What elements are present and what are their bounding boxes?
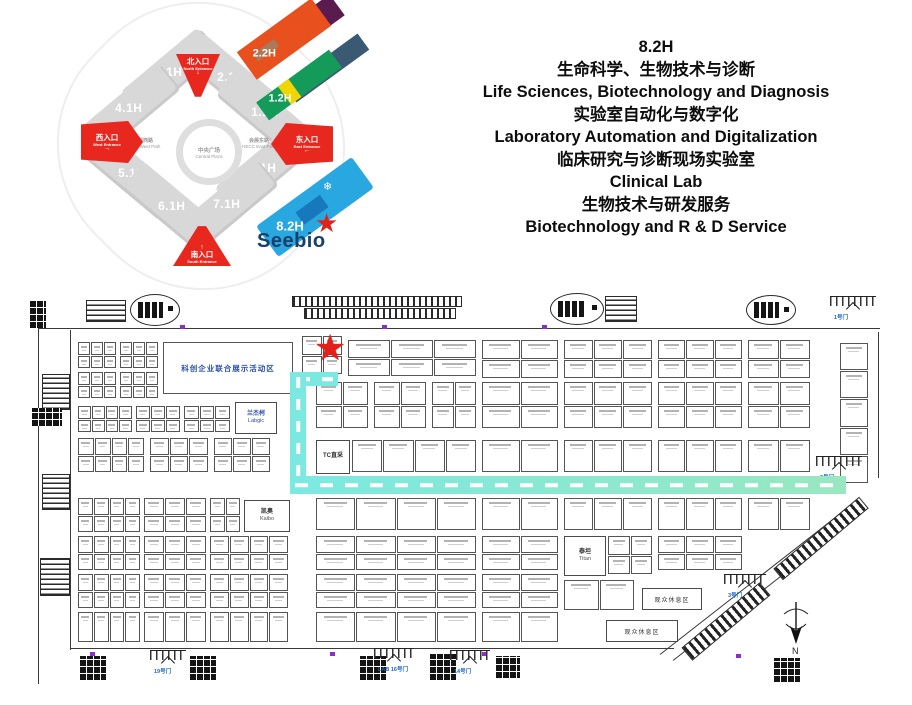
booth-cell bbox=[144, 574, 164, 591]
booth-cell bbox=[521, 536, 559, 553]
booth-cell bbox=[94, 612, 109, 642]
rest-area-0: 观众休息区 bbox=[642, 588, 702, 610]
header-line-1: 生命科学、生物技术与诊断 bbox=[408, 59, 904, 82]
booth-cell bbox=[748, 382, 779, 405]
booth-cell bbox=[432, 382, 454, 405]
service-point-3 bbox=[90, 652, 95, 656]
booth-cell bbox=[658, 360, 685, 379]
booth-cell bbox=[482, 382, 520, 405]
booth-grid-13 bbox=[210, 498, 240, 532]
booth-cell bbox=[686, 554, 713, 571]
booth-cell bbox=[521, 340, 559, 359]
booth-cell bbox=[166, 420, 180, 433]
booth-grid-8 bbox=[78, 438, 144, 472]
escalator-oval-0 bbox=[130, 294, 180, 326]
gate-0 bbox=[830, 296, 876, 306]
north-entrance-zh: 北入口 bbox=[187, 57, 210, 66]
booth-cell bbox=[125, 536, 140, 553]
booth-cell bbox=[133, 356, 145, 369]
booth-cell bbox=[250, 592, 269, 609]
booth-cell bbox=[186, 592, 206, 609]
booth-cell bbox=[104, 372, 116, 385]
booth-cell bbox=[186, 498, 206, 515]
booth-cell bbox=[780, 360, 811, 379]
header-line-3: 实验室自动化与数字化 bbox=[408, 104, 904, 127]
east-entrance-zh: 东入口 bbox=[296, 135, 319, 144]
booth-cell bbox=[133, 372, 145, 385]
booth-cell bbox=[120, 356, 132, 369]
booth-cell bbox=[434, 359, 476, 377]
booth-cell bbox=[151, 420, 165, 433]
booth-grid-2 bbox=[120, 342, 158, 368]
joint-exhibition-area: 科创企业联合展示活动区 bbox=[163, 342, 293, 394]
booth-tc-zhicai: TC直采 bbox=[316, 440, 350, 474]
rest-area-1: 观众休息区 bbox=[606, 620, 678, 642]
service-point-2 bbox=[542, 325, 547, 329]
booth-cell bbox=[564, 406, 593, 429]
hall-petal-label: 7.1H bbox=[213, 197, 240, 211]
booth-cell bbox=[269, 612, 288, 642]
booth-cell bbox=[437, 554, 476, 571]
booth-cell bbox=[91, 342, 103, 355]
booth-cell bbox=[210, 592, 229, 609]
header-line-8: Biotechnology and R & D Service bbox=[408, 216, 904, 239]
booth-cell bbox=[78, 516, 93, 533]
booth-cell bbox=[146, 342, 158, 355]
booth-cell bbox=[151, 406, 165, 419]
booth-cell bbox=[316, 574, 355, 591]
booth-cell bbox=[112, 438, 128, 455]
booth-cell bbox=[165, 554, 185, 571]
booth-cell bbox=[125, 554, 140, 571]
service-block-7 bbox=[32, 408, 62, 426]
booth-cell bbox=[233, 456, 251, 473]
booth-grid-36 bbox=[482, 536, 558, 570]
booth-cell bbox=[106, 420, 119, 433]
booth-cell bbox=[521, 382, 559, 405]
down-arrow-icon: ↓ bbox=[196, 71, 200, 75]
booth-cell bbox=[623, 340, 652, 359]
rest-area-label: 观众休息区 bbox=[624, 627, 659, 636]
booth-cell bbox=[658, 498, 685, 530]
booth-grid-38 bbox=[482, 612, 558, 642]
booth-cell bbox=[446, 440, 476, 472]
booth-cell bbox=[78, 438, 94, 455]
booth-cell bbox=[78, 420, 91, 433]
booth-cell bbox=[170, 438, 189, 455]
booth-cell bbox=[104, 356, 116, 369]
booth-cell bbox=[608, 556, 630, 575]
booth-cell bbox=[686, 498, 713, 530]
booth-cell bbox=[521, 592, 559, 609]
booth-cell bbox=[78, 498, 93, 515]
booth-cell bbox=[110, 592, 125, 609]
booth-cell bbox=[521, 574, 559, 591]
south-entrance-zh: 南入口 bbox=[191, 250, 214, 259]
booth-cell bbox=[356, 536, 395, 553]
booth-grid-46 bbox=[658, 382, 742, 428]
booth-cell bbox=[686, 406, 713, 429]
booth-grid-26 bbox=[432, 382, 476, 428]
booth-cell bbox=[104, 342, 116, 355]
escalator-oval-1 bbox=[550, 293, 604, 325]
booth-cell bbox=[780, 406, 811, 429]
booth-grid-22 bbox=[210, 612, 288, 642]
right-arrow-icon: → bbox=[104, 147, 111, 151]
booth-cell bbox=[128, 438, 144, 455]
booth-cell bbox=[110, 612, 125, 642]
booth-cell bbox=[482, 360, 520, 379]
booth-cell bbox=[437, 612, 476, 642]
booth-cell bbox=[343, 382, 369, 405]
booth-cell bbox=[226, 516, 241, 533]
booth-grid-12 bbox=[144, 498, 206, 532]
booth-cell bbox=[780, 498, 811, 530]
booth-cell bbox=[210, 516, 225, 533]
booth-cell bbox=[608, 536, 630, 555]
booth-grid-35 bbox=[482, 498, 558, 530]
service-block-1 bbox=[190, 656, 216, 680]
escalator-oval-2 bbox=[746, 295, 796, 325]
booth-cell bbox=[184, 406, 199, 419]
booth-cell bbox=[748, 360, 779, 379]
hall-1-2h-label: 1.2H bbox=[268, 93, 291, 105]
booth-cell bbox=[780, 382, 811, 405]
west-entrance-zh: 西入口 bbox=[96, 133, 119, 142]
booth-cell bbox=[715, 340, 742, 359]
booth-grid-3 bbox=[78, 372, 116, 398]
service-point-4 bbox=[330, 652, 335, 656]
central-plaza-label-en: Central Plaza bbox=[195, 154, 222, 159]
booth-cell bbox=[715, 360, 742, 379]
booth-cell bbox=[94, 554, 109, 571]
booth-cell bbox=[78, 592, 93, 609]
gate-1 bbox=[816, 456, 862, 466]
booth-cell bbox=[356, 612, 395, 642]
booth-cell bbox=[397, 536, 436, 553]
booth-kaibo-name-en: Kaibo bbox=[260, 516, 274, 523]
booth-cell bbox=[78, 342, 90, 355]
booth-cell bbox=[631, 536, 653, 555]
booth-cell bbox=[210, 536, 229, 553]
booth-grid-5 bbox=[78, 406, 132, 432]
booth-cell bbox=[210, 554, 229, 571]
booth-cell bbox=[165, 498, 185, 515]
booth-grid-29 bbox=[316, 536, 476, 570]
hall-description-header: 8.2H生命科学、生物技术与诊断Life Sciences, Biotechno… bbox=[408, 36, 904, 239]
booth-grid-24 bbox=[316, 382, 368, 428]
booth-cell bbox=[748, 440, 779, 472]
booth-cell bbox=[594, 382, 623, 405]
booth-cell bbox=[482, 440, 520, 472]
booth-cell bbox=[521, 360, 559, 379]
booth-labgic: 兰杰柯Labgic bbox=[235, 402, 277, 434]
booth-cell bbox=[230, 592, 249, 609]
booth-cell bbox=[165, 612, 185, 642]
booth-cell bbox=[136, 406, 150, 419]
booth-cell bbox=[623, 360, 652, 379]
booth-cell bbox=[348, 340, 390, 358]
booth-cell bbox=[482, 592, 520, 609]
booth-cell bbox=[252, 456, 270, 473]
booth-cell bbox=[144, 536, 164, 553]
booth-cell bbox=[840, 428, 868, 455]
booth-cell bbox=[432, 406, 454, 429]
booth-cell bbox=[397, 554, 436, 571]
booth-grid-44 bbox=[564, 580, 634, 610]
header-line-0: 8.2H bbox=[408, 36, 904, 59]
booth-cell bbox=[78, 612, 93, 642]
booth-cell bbox=[210, 574, 229, 591]
booth-cell bbox=[455, 406, 477, 429]
booth-grid-6 bbox=[136, 406, 180, 432]
booth-kaibo: 凯奥Kaibo bbox=[244, 500, 290, 532]
booth-cell bbox=[165, 574, 185, 591]
booth-grid-34 bbox=[482, 440, 558, 472]
booth-cell bbox=[186, 574, 206, 591]
booth-titan-name-en: Titan bbox=[579, 556, 591, 563]
seebio-star-icon-plan: ★ bbox=[314, 330, 346, 366]
booth-cell bbox=[564, 340, 593, 359]
booth-cell bbox=[200, 406, 215, 419]
south-entrance-en: South Entrance bbox=[187, 259, 217, 264]
booth-cell bbox=[564, 440, 593, 472]
central-plaza: 中央广场 Central Plaza bbox=[176, 119, 242, 185]
booth-cell bbox=[112, 456, 128, 473]
booth-cell bbox=[316, 592, 355, 609]
booth-cell bbox=[415, 440, 445, 472]
booth-grid-4 bbox=[120, 372, 158, 398]
stairs-3 bbox=[42, 474, 70, 510]
booth-cell bbox=[184, 420, 199, 433]
booth-cell bbox=[316, 536, 355, 553]
booth-grid-33 bbox=[482, 382, 558, 428]
booth-grid-37 bbox=[482, 574, 558, 608]
visitor-route-segment-1 bbox=[290, 372, 306, 492]
booth-cell bbox=[269, 536, 288, 553]
booth-cell bbox=[658, 382, 685, 405]
header-line-2: Life Sciences, Biotechnology and Diagnos… bbox=[408, 81, 904, 104]
booth-cell bbox=[482, 498, 520, 530]
booth-cell bbox=[110, 574, 125, 591]
booth-cell bbox=[250, 612, 269, 642]
booth-cell bbox=[748, 340, 779, 359]
service-block-5 bbox=[774, 658, 800, 682]
booth-cell bbox=[166, 406, 180, 419]
booth-cell bbox=[110, 554, 125, 571]
booth-cell bbox=[780, 440, 811, 472]
joint-exhibition-area-label: 科创企业联合展示活动区 bbox=[181, 363, 275, 374]
booth-cell bbox=[437, 574, 476, 591]
booth-cell bbox=[840, 399, 868, 426]
booth-cell bbox=[686, 340, 713, 359]
booth-cell bbox=[250, 574, 269, 591]
booth-cell bbox=[146, 372, 158, 385]
booth-cell bbox=[144, 592, 164, 609]
header-line-4: Laboratory Automation and Digitalization bbox=[408, 126, 904, 149]
booth-cell bbox=[564, 382, 593, 405]
stairs-2 bbox=[42, 374, 70, 410]
booth-cell bbox=[91, 386, 103, 399]
booth-cell bbox=[133, 342, 145, 355]
gate-2 bbox=[724, 574, 766, 584]
booth-cell bbox=[397, 612, 436, 642]
hall-8-2h-floorplan: N 科创企业联合展示活动区TC直采兰杰柯Labgic凯奥Kaibo泰坦Titan… bbox=[30, 288, 905, 705]
booth-cell bbox=[106, 406, 119, 419]
rest-area-label: 观众休息区 bbox=[654, 595, 689, 604]
booth-cell bbox=[391, 359, 433, 377]
booth-cell bbox=[200, 420, 215, 433]
booth-cell bbox=[144, 554, 164, 571]
venue-overview-map: 3.1H4.1H2.1H1.1H5.1H6.1H8.1H7.1H 中央广场 Ce… bbox=[35, 0, 387, 292]
booth-cell bbox=[401, 382, 427, 405]
booth-cell bbox=[252, 438, 270, 455]
booth-cell bbox=[383, 440, 413, 472]
booth-grid-14 bbox=[78, 536, 140, 570]
booth-cell bbox=[215, 420, 230, 433]
compass-north-icon: N bbox=[776, 600, 816, 656]
booth-cell bbox=[437, 592, 476, 609]
booth-cell bbox=[78, 574, 93, 591]
booth-cell bbox=[434, 340, 476, 358]
booth-cell bbox=[686, 440, 713, 472]
booth-cell bbox=[343, 406, 369, 429]
booth-cell bbox=[356, 498, 395, 530]
booth-cell bbox=[521, 554, 559, 571]
booth-cell bbox=[119, 420, 132, 433]
booth-cell bbox=[214, 438, 232, 455]
booth-cell bbox=[840, 343, 868, 370]
booth-cell bbox=[250, 536, 269, 553]
booth-cell bbox=[136, 420, 150, 433]
booth-cell bbox=[91, 372, 103, 385]
booth-grid-45 bbox=[658, 340, 742, 378]
wall-line-0 bbox=[38, 328, 880, 329]
booth-cell bbox=[186, 554, 206, 571]
booth-cell bbox=[356, 554, 395, 571]
booth-cell bbox=[715, 536, 742, 553]
booth-cell bbox=[94, 498, 109, 515]
service-point-0 bbox=[180, 325, 185, 329]
escalator-band-1 bbox=[304, 308, 456, 319]
booth-cell bbox=[165, 536, 185, 553]
booth-grid-17 bbox=[78, 574, 140, 608]
booth-cell bbox=[78, 456, 94, 473]
booth-cell bbox=[348, 359, 390, 377]
booth-cell bbox=[78, 372, 90, 385]
route-dashes bbox=[295, 483, 841, 487]
booth-cell bbox=[594, 340, 623, 359]
visitor-route-segment-2 bbox=[290, 476, 846, 494]
booth-cell bbox=[189, 438, 208, 455]
booth-cell bbox=[146, 386, 158, 399]
booth-titan: 泰坦Titan bbox=[564, 536, 606, 576]
booth-cell bbox=[186, 536, 206, 553]
booth-cell bbox=[686, 360, 713, 379]
booth-cell bbox=[125, 516, 140, 533]
booth-cell bbox=[715, 554, 742, 571]
booth-grid-23 bbox=[348, 340, 476, 376]
booth-cell bbox=[316, 612, 355, 642]
booth-cell bbox=[686, 536, 713, 553]
booth-cell bbox=[658, 406, 685, 429]
route-dashes bbox=[296, 377, 300, 487]
wall-line-3 bbox=[70, 648, 674, 649]
service-block-4 bbox=[496, 656, 520, 678]
wall-line-2 bbox=[70, 330, 71, 650]
booth-cell bbox=[658, 554, 685, 571]
booth-cell bbox=[110, 498, 125, 515]
service-point-1 bbox=[382, 325, 387, 329]
service-point-6 bbox=[736, 654, 741, 658]
booth-cell bbox=[150, 456, 169, 473]
booth-grid-19 bbox=[210, 574, 288, 608]
booth-cell bbox=[397, 574, 436, 591]
booth-cell bbox=[94, 516, 109, 533]
booth-cell bbox=[715, 498, 742, 530]
booth-cell bbox=[78, 356, 90, 369]
service-block-0 bbox=[80, 656, 106, 680]
booth-cell bbox=[748, 498, 779, 530]
booth-grid-1 bbox=[78, 342, 116, 368]
gate-label-0: 1号门 bbox=[834, 313, 848, 321]
booth-cell bbox=[374, 382, 400, 405]
booth-labgic-name-en: Labgic bbox=[248, 418, 264, 425]
escalator-band-0 bbox=[292, 296, 462, 307]
booth-grid-32 bbox=[482, 340, 558, 378]
wall-line-4 bbox=[878, 332, 879, 478]
booth-tc-zhicai-name: TC直采 bbox=[323, 453, 343, 460]
booth-cell bbox=[316, 554, 355, 571]
booth-cell bbox=[715, 406, 742, 429]
booth-cell bbox=[356, 592, 395, 609]
booth-cell bbox=[94, 536, 109, 553]
booth-cell bbox=[104, 386, 116, 399]
booth-cell bbox=[78, 554, 93, 571]
booth-grid-30 bbox=[316, 574, 476, 608]
booth-grid-10 bbox=[214, 438, 270, 472]
booth-cell bbox=[269, 592, 288, 609]
booth-cell bbox=[631, 556, 653, 575]
booth-cell bbox=[521, 612, 559, 642]
booth-grid-39 bbox=[564, 340, 652, 378]
booth-cell bbox=[120, 372, 132, 385]
booth-cell bbox=[186, 516, 206, 533]
booth-grid-28 bbox=[316, 498, 476, 530]
booth-grid-53 bbox=[748, 498, 810, 530]
gate-label-2: 3号门 bbox=[728, 591, 742, 599]
booth-cell bbox=[564, 580, 599, 610]
booth-cell bbox=[230, 612, 249, 642]
booth-cell bbox=[110, 536, 125, 553]
booth-cell bbox=[623, 406, 652, 429]
gate-3 bbox=[150, 650, 186, 660]
booth-cell bbox=[94, 592, 109, 609]
booth-grid-40 bbox=[564, 382, 652, 428]
booth-cell bbox=[482, 612, 520, 642]
booth-cell bbox=[210, 612, 229, 642]
booth-cell bbox=[165, 592, 185, 609]
booth-cell bbox=[482, 340, 520, 359]
booth-cell bbox=[133, 386, 145, 399]
booth-cell bbox=[482, 536, 520, 553]
booth-cell bbox=[92, 420, 105, 433]
booth-cell bbox=[94, 574, 109, 591]
booth-cell bbox=[78, 406, 91, 419]
booth-cell bbox=[352, 440, 382, 472]
header-line-7: 生物技术与研发服务 bbox=[408, 194, 904, 217]
booth-cell bbox=[226, 498, 241, 515]
